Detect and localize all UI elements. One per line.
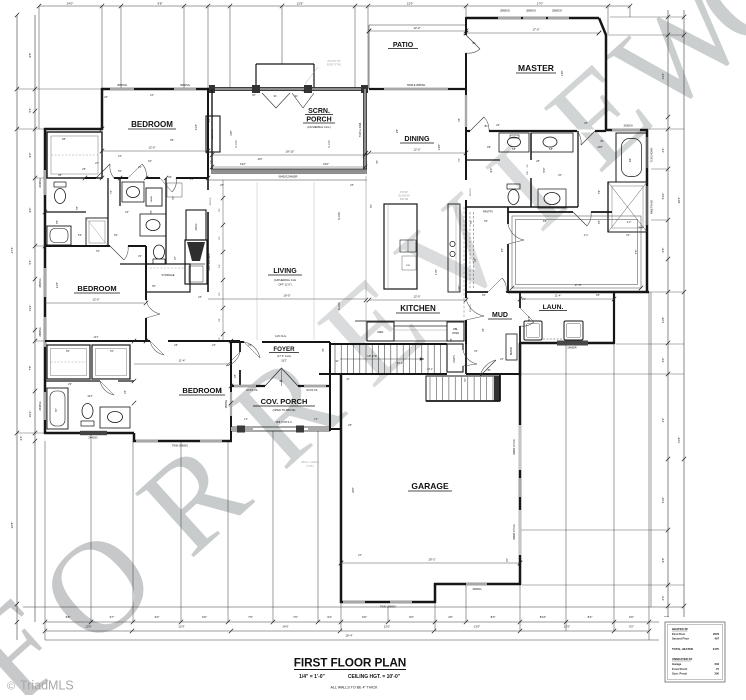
- svg-text:6'8": 6'8": [661, 248, 665, 253]
- svg-text:POST (TYP.): POST (TYP.): [327, 64, 342, 67]
- svg-text:(OPEN TO ABOVE): (OPEN TO ABOVE): [273, 408, 296, 412]
- svg-text:9'2": 9'2": [629, 625, 634, 629]
- svg-text:4868 TRANS: 4868 TRANS: [651, 200, 654, 214]
- svg-text:6'4": 6'4": [148, 161, 152, 163]
- svg-text:SLOPE: SLOPE: [338, 302, 341, 310]
- svg-text:14'0": 14'0": [282, 625, 288, 629]
- svg-text:SLOPE: SLOPE: [338, 212, 341, 220]
- svg-text:17'6": 17'6": [434, 269, 438, 275]
- svg-text:12'-0": 12'-0": [92, 298, 99, 302]
- svg-text:1'6": 1'6": [211, 160, 213, 164]
- svg-text:TWIN 2868SG: TWIN 2868SG: [380, 606, 396, 609]
- svg-text:4'2": 4'2": [626, 235, 630, 237]
- svg-text:497: 497: [715, 637, 720, 641]
- svg-text:3'4": 3'4": [459, 118, 461, 122]
- svg-text:3050SG: 3050SG: [180, 83, 190, 87]
- svg-text:2868SG: 2868SG: [39, 278, 42, 287]
- svg-text:3/0 P/L P/L: 3/0 P/L P/L: [246, 389, 258, 392]
- svg-text:1/4" = 1'-0": 1/4" = 1'-0": [299, 674, 325, 680]
- svg-text:BEDROOM: BEDROOM: [77, 284, 116, 293]
- svg-text:OVEN: OVEN: [452, 332, 459, 335]
- svg-text:9'8": 9'8": [661, 558, 665, 563]
- svg-text:5'4": 5'4": [28, 108, 32, 113]
- svg-text:5'0": 5'0": [118, 171, 122, 173]
- svg-text:6'0": 6'0": [114, 235, 118, 237]
- svg-text:5'2": 5'2": [96, 251, 100, 253]
- svg-text:2'4": 2'4": [522, 299, 526, 301]
- svg-text:6'0": 6'0": [409, 615, 414, 619]
- svg-text:72'8": 72'8": [677, 437, 681, 444]
- svg-text:11'6": 11'6": [55, 282, 59, 288]
- svg-text:3'4": 3'4": [138, 167, 142, 169]
- svg-text:7'6": 7'6": [111, 190, 113, 194]
- svg-text:5'0": 5'0": [542, 168, 546, 173]
- svg-text:10'0": 10'0": [257, 159, 262, 161]
- svg-text:13'0": 13'0": [474, 625, 480, 629]
- svg-text:TRIPLE 2468: TRIPLE 2468: [359, 122, 362, 137]
- svg-text:5'10": 5'10": [661, 193, 665, 200]
- svg-text:7'6": 7'6": [634, 250, 638, 255]
- svg-text:5'6": 5'6": [151, 210, 153, 214]
- svg-text:3'6": 3'6": [377, 160, 379, 164]
- svg-text:2868SG: 2868SG: [552, 9, 562, 13]
- svg-text:2'6": 2'6": [584, 123, 588, 125]
- svg-text:200: 200: [715, 672, 720, 676]
- svg-text:6'0": 6'0": [629, 615, 634, 619]
- svg-text:3'6 C.O.: 3'6 C.O.: [210, 197, 212, 205]
- svg-text:ISLAND W/: ISLAND W/: [398, 195, 410, 198]
- svg-text:11'-4": 11'-4": [179, 359, 186, 363]
- svg-text:3'4": 3'4": [219, 318, 221, 322]
- svg-text:1'4": 1'4": [244, 419, 248, 421]
- svg-text:9040SC/2468DR: 9040SC/2468DR: [279, 176, 298, 179]
- svg-text:3'0": 3'0": [219, 208, 221, 212]
- svg-text:2'6": 2'6": [350, 185, 354, 187]
- svg-text:HEATED SF: HEATED SF: [672, 627, 688, 631]
- svg-text:UP 17R: UP 17R: [367, 354, 376, 358]
- svg-text:8'8": 8'8": [170, 140, 174, 142]
- svg-text:5'0": 5'0": [152, 286, 156, 288]
- svg-text:5'2": 5'2": [78, 234, 82, 237]
- svg-text:TWIN 2868SG: TWIN 2868SG: [172, 445, 188, 448]
- svg-text:TOTAL HEATED: TOTAL HEATED: [672, 647, 693, 651]
- svg-text:2'4": 2'4": [95, 163, 99, 165]
- svg-text:2'4": 2'4": [212, 345, 216, 347]
- svg-text:2'6": 2'6": [198, 297, 202, 299]
- svg-text:4'6"x9'0": 4'6"x9'0": [400, 192, 409, 194]
- svg-text:STORAGE: STORAGE: [161, 273, 174, 277]
- svg-text:10": 10": [335, 361, 339, 363]
- svg-text:3'0": 3'0": [173, 196, 175, 200]
- svg-text:4'2": 4'2": [661, 418, 665, 423]
- svg-text:2868SG: 2868SG: [526, 9, 536, 13]
- svg-text:12'-0": 12'-0": [148, 146, 155, 150]
- svg-text:2'6": 2'6": [496, 125, 500, 127]
- svg-text:2'4": 2'4": [125, 390, 127, 394]
- svg-text:6'0": 6'0": [155, 615, 160, 619]
- svg-text:12'6": 12'6": [297, 2, 304, 6]
- svg-text:(CATHEDRAL CLG: (CATHEDRAL CLG: [274, 278, 296, 282]
- svg-text:11'-4": 11'-4": [555, 294, 562, 298]
- svg-text:6'0": 6'0": [629, 158, 632, 162]
- svg-text:2'8": 2'8": [82, 169, 86, 171]
- svg-text:12'0": 12'0": [178, 625, 184, 629]
- svg-text:4'-2": 4'-2": [627, 222, 632, 224]
- svg-text:11'0 CLG.: 11'0 CLG.: [275, 334, 287, 338]
- svg-text:14'0": 14'0": [437, 144, 441, 151]
- svg-text:3'8": 3'8": [487, 146, 491, 149]
- svg-text:2'8": 2'8": [174, 345, 178, 347]
- svg-text:6'0": 6'0": [56, 408, 58, 412]
- svg-text:13'0": 13'0": [85, 625, 91, 629]
- svg-text:5'4": 5'4": [482, 295, 486, 297]
- svg-text:2468DR: 2468DR: [567, 347, 576, 350]
- svg-text:9'7": 9'7": [110, 615, 115, 619]
- svg-text:10'0": 10'0": [323, 162, 329, 166]
- svg-text:12'-0": 12'-0": [413, 148, 420, 152]
- svg-text:75: 75: [716, 667, 719, 671]
- svg-text:UNHEATED SF: UNHEATED SF: [672, 657, 693, 661]
- svg-text:6'8": 6'8": [543, 220, 547, 223]
- svg-text:AH/AC: AH/AC: [195, 223, 198, 230]
- svg-text:6'8": 6'8": [599, 220, 601, 224]
- svg-text:8068S OH DR: 8068S OH DR: [513, 524, 516, 540]
- svg-text:8'0": 8'0": [491, 615, 496, 619]
- svg-text:2'4": 2'4": [19, 436, 23, 441]
- svg-text:12'0": 12'0": [407, 2, 414, 6]
- svg-text:5'0": 5'0": [110, 351, 114, 353]
- svg-text:(TYP.): (TYP.): [306, 464, 313, 468]
- svg-text:(17' 0" CLG): (17' 0" CLG): [277, 355, 291, 358]
- svg-text:2'8": 2'8": [536, 161, 540, 163]
- svg-text:11'6": 11'6": [229, 130, 233, 136]
- svg-text:3050SG: 3050SG: [117, 83, 127, 87]
- svg-text:2'4": 2'4": [118, 156, 122, 158]
- svg-text:5'8": 5'8": [527, 316, 531, 321]
- svg-text:24'0": 24'0": [67, 2, 74, 6]
- svg-text:3'4": 3'4": [483, 328, 485, 332]
- svg-text:CEILING HGT. = 10'-0": CEILING HGT. = 10'-0": [348, 674, 401, 680]
- svg-text:17'0": 17'0": [537, 2, 544, 6]
- svg-text:2868SG: 2868SG: [39, 327, 42, 336]
- svg-text:13'-1": 13'-1": [397, 362, 403, 365]
- svg-text:ALL WALLS TO BE 4" THICK: ALL WALLS TO BE 4" THICK: [331, 686, 379, 690]
- svg-text:5'4": 5'4": [28, 260, 32, 265]
- svg-text:14'6": 14'6": [560, 70, 564, 76]
- svg-text:13'2": 13'2": [28, 305, 32, 312]
- svg-text:17'-0": 17'-0": [532, 28, 539, 32]
- svg-text:19'2": 19'2": [281, 360, 287, 363]
- svg-text:8'2": 8'2": [588, 615, 593, 619]
- svg-text:9'8": 9'8": [28, 53, 32, 58]
- svg-text:2'6": 2'6": [661, 596, 665, 601]
- svg-text:7'6": 7'6": [598, 190, 601, 194]
- svg-text:7'0": 7'0": [459, 158, 461, 162]
- svg-text:7'0": 7'0": [248, 615, 253, 619]
- svg-text:4'6": 4'6": [138, 256, 142, 258]
- svg-text:2'6": 2'6": [451, 338, 453, 342]
- svg-text:12'0": 12'0": [384, 625, 390, 629]
- svg-text:9'8": 9'8": [66, 615, 71, 619]
- svg-text:5'0": 5'0": [371, 204, 373, 208]
- svg-text:9'8": 9'8": [58, 175, 62, 177]
- svg-text:9'4": 9'4": [501, 248, 504, 252]
- svg-text:2'0": 2'0": [219, 292, 221, 296]
- svg-text:2446SG: 2446SG: [39, 178, 42, 187]
- svg-text:Garage: Garage: [672, 662, 682, 666]
- svg-text:TRIPLE 2868SG: TRIPLE 2868SG: [407, 84, 426, 87]
- svg-text:8'8": 8'8": [62, 139, 66, 141]
- svg-text:7'0": 7'0": [293, 615, 298, 619]
- svg-text:20'6": 20'6": [351, 487, 355, 493]
- svg-text:2868SG: 2868SG: [226, 400, 228, 409]
- svg-text:2'6": 2'6": [395, 129, 399, 133]
- svg-text:1'4": 1'4": [314, 419, 318, 421]
- svg-text:29'-3": 29'-3": [428, 558, 435, 562]
- svg-text:MUD: MUD: [492, 312, 508, 319]
- svg-text:LAUN.: LAUN.: [543, 304, 564, 311]
- svg-text:DINING: DINING: [404, 134, 430, 143]
- svg-text:8'10": 8'10": [540, 615, 546, 619]
- svg-text:TriadMLS: TriadMLS: [20, 679, 74, 693]
- svg-text:9'0": 9'0": [489, 168, 493, 173]
- svg-text:2'0": 2'0": [500, 359, 504, 361]
- svg-text:5'4": 5'4": [219, 264, 221, 268]
- svg-text:Scrn. Porch: Scrn. Porch: [672, 672, 687, 676]
- svg-text:3'6": 3'6": [323, 348, 325, 352]
- svg-text:12'0": 12'0": [219, 387, 223, 394]
- svg-text:OFF 11'-0"): OFF 11'-0"): [278, 283, 291, 287]
- svg-text:8'4": 8'4": [57, 220, 59, 224]
- svg-text:DBL: DBL: [453, 328, 458, 331]
- svg-text:PATIO: PATIO: [393, 42, 414, 49]
- svg-text:MASTER: MASTER: [518, 63, 554, 73]
- svg-text:3'6": 3'6": [248, 345, 252, 347]
- svg-text:First Floor: First Floor: [672, 632, 685, 636]
- svg-text:3'4": 3'4": [327, 615, 332, 619]
- svg-text:GARAGE: GARAGE: [411, 481, 449, 491]
- svg-text:14'8": 14'8": [597, 146, 602, 149]
- svg-text:3036SH: 3036SH: [623, 125, 632, 128]
- svg-text:4'8"o.c. uniform: 4'8"o.c. uniform: [301, 460, 319, 464]
- svg-text:2446SG: 2446SG: [39, 401, 42, 410]
- svg-text:18'8 X 6'8 S.C.: 18'8 X 6'8 S.C.: [275, 420, 292, 424]
- svg-text:5'8": 5'8": [512, 148, 516, 151]
- svg-text:9'4": 9'4": [475, 258, 477, 262]
- svg-text:2678: 2678: [713, 632, 719, 636]
- svg-text:11'6": 11'6": [194, 124, 198, 130]
- svg-text:12'-0": 12'-0": [413, 26, 420, 30]
- svg-text:19'-0": 19'-0": [283, 294, 290, 298]
- svg-text:SLOPE: SLOPE: [235, 140, 238, 148]
- svg-text:9'0": 9'0": [28, 208, 32, 213]
- svg-text:12'0": 12'0": [564, 625, 570, 629]
- svg-text:(CATHEDRAL CLG.): (CATHEDRAL CLG.): [307, 125, 331, 129]
- svg-text:FOYER: FOYER: [273, 346, 295, 353]
- svg-text:22'0": 22'0": [457, 285, 461, 291]
- svg-text:BEDROOM: BEDROOM: [131, 120, 173, 129]
- svg-text:©: ©: [7, 681, 15, 693]
- svg-text:10": 10": [346, 379, 350, 381]
- svg-text:18'-10": 18'-10": [286, 150, 295, 154]
- svg-text:3'0 C.O.: 3'0 C.O.: [470, 188, 472, 196]
- svg-text:36'8": 36'8": [10, 522, 14, 529]
- svg-text:FIRST FLOOR PLAN: FIRST FLOOR PLAN: [294, 656, 406, 670]
- svg-text:2'0": 2'0": [219, 236, 221, 240]
- svg-text:7'8": 7'8": [28, 366, 32, 371]
- svg-text:9'0": 9'0": [28, 153, 32, 158]
- svg-text:5'8": 5'8": [549, 148, 553, 151]
- svg-text:SCRN.: SCRN.: [308, 108, 330, 115]
- svg-text:BENCH: BENCH: [511, 347, 513, 355]
- svg-text:COATS: COATS: [453, 355, 456, 363]
- svg-text:2'6": 2'6": [68, 384, 72, 386]
- svg-text:5'0": 5'0": [471, 220, 473, 224]
- svg-text:SLOPE: SLOPE: [328, 140, 331, 148]
- svg-text:3'0 C.O.: 3'0 C.O.: [470, 304, 472, 312]
- svg-text:6'0": 6'0": [362, 615, 367, 619]
- svg-text:3/0 P/L P/L: 3/0 P/L P/L: [306, 389, 318, 392]
- svg-text:11'0": 11'0": [661, 497, 665, 503]
- svg-text:PORCH: PORCH: [306, 117, 331, 124]
- svg-text:LINEN: LINEN: [151, 195, 153, 202]
- svg-text:Front Porch: Front Porch: [672, 667, 688, 671]
- svg-text:COV. PORCH: COV. PORCH: [261, 397, 308, 406]
- svg-text:10'2": 10'2": [28, 411, 32, 418]
- svg-text:5'4": 5'4": [484, 221, 488, 223]
- svg-text:4'0": 4'0": [661, 358, 665, 363]
- svg-text:2440SG: 2440SG: [88, 437, 97, 440]
- svg-text:6'8": 6'8": [596, 295, 600, 297]
- svg-text:4'-4": 4'-4": [584, 235, 589, 237]
- svg-text:DW/ SB: DW/ SB: [400, 199, 409, 201]
- svg-text:13'-1": 13'-1": [427, 369, 433, 371]
- svg-text:2'4": 2'4": [358, 555, 362, 557]
- svg-text:5'8": 5'8": [77, 206, 79, 210]
- svg-text:BARN DR: BARN DR: [211, 129, 214, 139]
- svg-text:2'6": 2'6": [209, 118, 211, 122]
- svg-text:2'4": 2'4": [150, 95, 154, 97]
- svg-text:Second Floor: Second Floor: [672, 637, 689, 641]
- svg-text:2'4": 2'4": [190, 179, 194, 181]
- svg-text:3'0": 3'0": [465, 378, 467, 382]
- svg-text:3468SG: 3468SG: [472, 588, 481, 591]
- svg-text:2'4": 2'4": [661, 148, 665, 153]
- svg-text:14'4": 14'4": [661, 73, 665, 80]
- svg-text:BEDROOM: BEDROOM: [182, 386, 221, 395]
- svg-text:2'6": 2'6": [220, 185, 224, 187]
- svg-text:SEAT: SEAT: [638, 226, 644, 229]
- svg-text:4'0": 4'0": [558, 175, 562, 177]
- svg-text:2'6": 2'6": [104, 97, 108, 99]
- svg-text:9'0": 9'0": [302, 91, 306, 93]
- svg-text:17'-8": 17'-8": [575, 283, 582, 287]
- svg-text:3'4": 3'4": [474, 351, 478, 353]
- svg-text:TUB/SHOWR: TUB/SHOWR: [651, 147, 654, 162]
- svg-text:11'8": 11'8": [661, 317, 665, 323]
- svg-text:6'0": 6'0": [202, 615, 207, 619]
- svg-text:LIVING: LIVING: [273, 268, 297, 275]
- svg-text:3'6": 3'6": [168, 177, 172, 179]
- svg-text:PANTRY: PANTRY: [483, 210, 494, 214]
- svg-text:REF: REF: [378, 330, 384, 334]
- svg-text:2'0": 2'0": [507, 558, 509, 562]
- svg-text:9'0": 9'0": [252, 95, 256, 97]
- svg-text:13'4": 13'4": [87, 395, 92, 398]
- svg-text:28'4": 28'4": [677, 197, 681, 204]
- svg-text:2'8": 2'8": [348, 425, 352, 427]
- svg-text:9'8": 9'8": [158, 2, 163, 6]
- svg-text:8068S OH DR: 8068S OH DR: [513, 439, 516, 455]
- svg-text:2'0": 2'0": [175, 256, 177, 260]
- svg-text:KITCHEN: KITCHEN: [400, 304, 436, 313]
- svg-text:4'0": 4'0": [448, 615, 453, 619]
- svg-text:2868SG: 2868SG: [500, 9, 510, 13]
- svg-text:19'2": 19'2": [240, 162, 246, 166]
- svg-text:PD: PD: [527, 171, 529, 174]
- svg-text:12'-0": 12'-0": [413, 295, 420, 299]
- svg-text:5'0": 5'0": [66, 351, 70, 353]
- svg-text:2'8": 2'8": [235, 374, 237, 378]
- svg-text:13'4": 13'4": [93, 337, 98, 339]
- svg-text:2'6": 2'6": [125, 212, 129, 214]
- svg-text:27'4": 27'4": [10, 247, 14, 254]
- svg-text:3175: 3175: [713, 647, 720, 651]
- svg-text:633: 633: [715, 662, 720, 666]
- svg-text:19'-4": 19'-4": [345, 634, 352, 638]
